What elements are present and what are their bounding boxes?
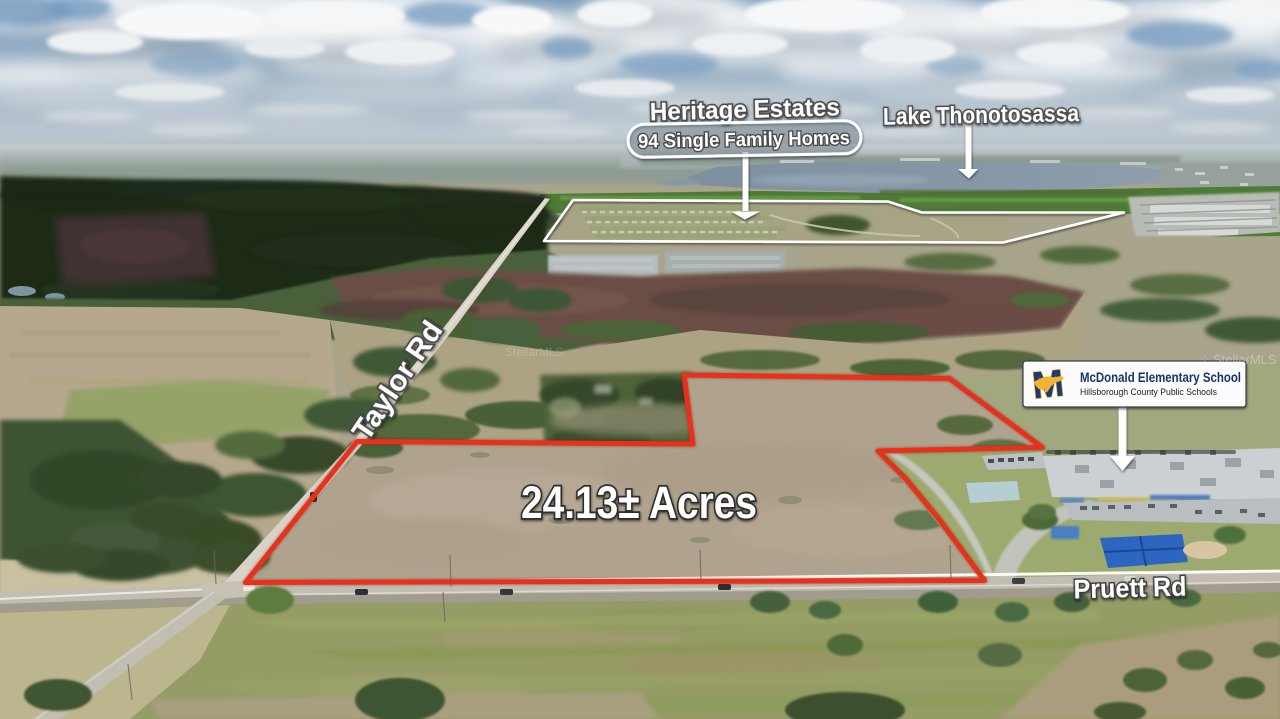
- svg-text:24.13± Acres: 24.13± Acres: [521, 477, 757, 528]
- svg-text:Hillsborough County Public Sch: Hillsborough County Public Schools: [1080, 387, 1217, 398]
- svg-text:94 Single Family Homes: 94 Single Family Homes: [638, 127, 850, 153]
- svg-text:Lake Thonotosassa: Lake Thonotosassa: [883, 100, 1080, 130]
- svg-text:StellarMLS: StellarMLS: [505, 345, 564, 359]
- svg-text:StellarMLS: StellarMLS: [1213, 352, 1277, 367]
- svg-text:⁘: ⁘: [1200, 354, 1209, 366]
- svg-text:Pruett Rd: Pruett Rd: [1073, 572, 1187, 605]
- svg-text:McDonald Elementary School: McDonald Elementary School: [1080, 369, 1241, 385]
